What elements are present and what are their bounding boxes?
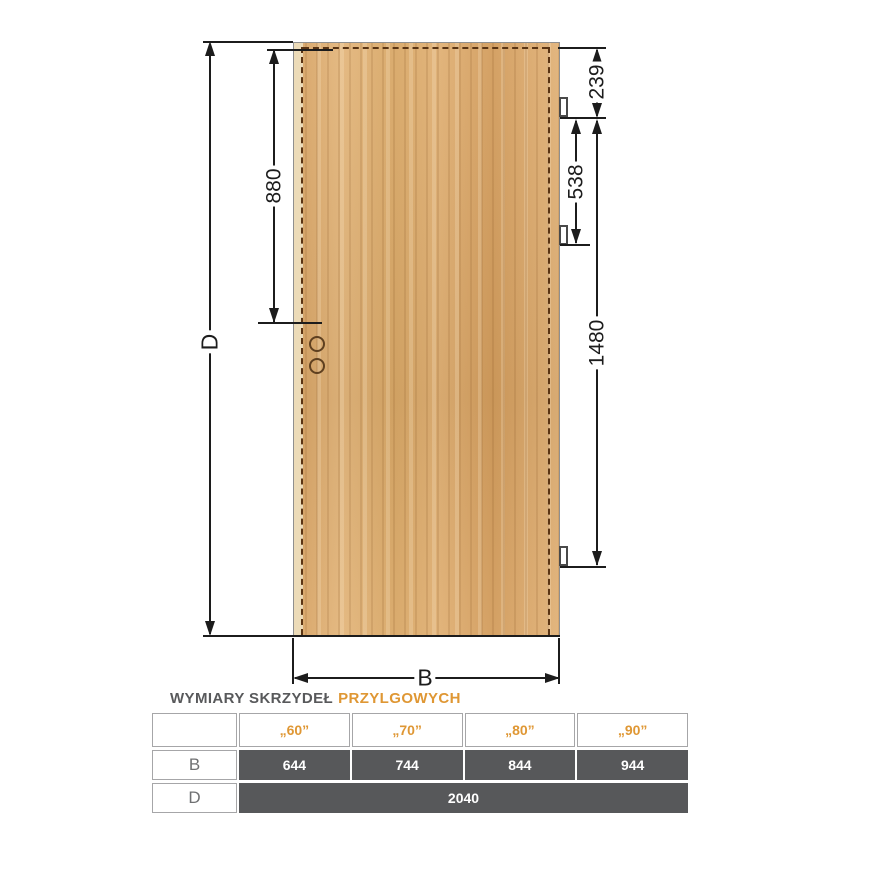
dim-880-label: 880 [264,165,285,206]
dim-239-arrow-bottom [592,103,602,118]
dim-d-label: D [199,331,222,354]
row-label-b: B [152,750,237,780]
dim-b-arrow-right [545,673,560,683]
lock-hole-bottom [309,358,325,374]
dim-1480-label: 1480 [587,317,608,370]
col-header-60: „60” [239,713,350,747]
dim-b-arrow-left [293,673,308,683]
cell-b-70: 744 [352,750,463,780]
cell-b-80: 844 [465,750,576,780]
dim-880-arrow-bottom [269,308,279,323]
dim-538-label: 538 [566,161,587,202]
dim-880-tick-bottom [258,322,322,324]
rebate-dash-top [303,47,548,49]
table-corner-cell [152,713,237,747]
hinge-top [559,97,568,117]
hinge-bottom-tick-line [560,566,606,568]
dimension-table: „60” „70” „80” „90” B 644 744 844 944 D … [152,713,688,813]
cell-b-60: 644 [239,750,350,780]
hinge-bottom [559,546,568,566]
row-label-d: D [152,783,237,813]
dim-538-arrow-top [571,119,581,134]
dim-239-label: 239 [587,61,608,102]
dim-d-arrow-bottom [205,621,215,636]
hinge-middle-tick-line [560,244,590,246]
col-header-70: „70” [352,713,463,747]
dim-b-label: B [414,667,435,690]
extension-line-top-left [203,41,293,43]
lock-hole-top [309,336,325,352]
dim-538-arrow-bottom [571,229,581,244]
door-leaf [293,42,560,636]
table-title: WYMIARY SKRZYDEŁPRZYLGOWYCH [170,690,461,707]
dim-1480-arrow-bottom [592,551,602,566]
col-header-90: „90” [577,713,688,747]
dim-880-arrow-top [269,49,279,64]
table-title-gray: WYMIARY SKRZYDEŁ [170,690,333,707]
dim-1480-arrow-top [592,119,602,134]
cell-b-90: 944 [577,750,688,780]
hinge-middle [559,225,568,245]
col-header-80: „80” [465,713,576,747]
dim-d-arrow-top [205,41,215,56]
rebate-dash-left [301,47,303,635]
rebate-dash-right [548,47,550,635]
cell-d-all: 2040 [239,783,688,813]
ground-line [203,635,560,637]
table-title-orange: PRZYLGOWYCH [338,690,461,707]
